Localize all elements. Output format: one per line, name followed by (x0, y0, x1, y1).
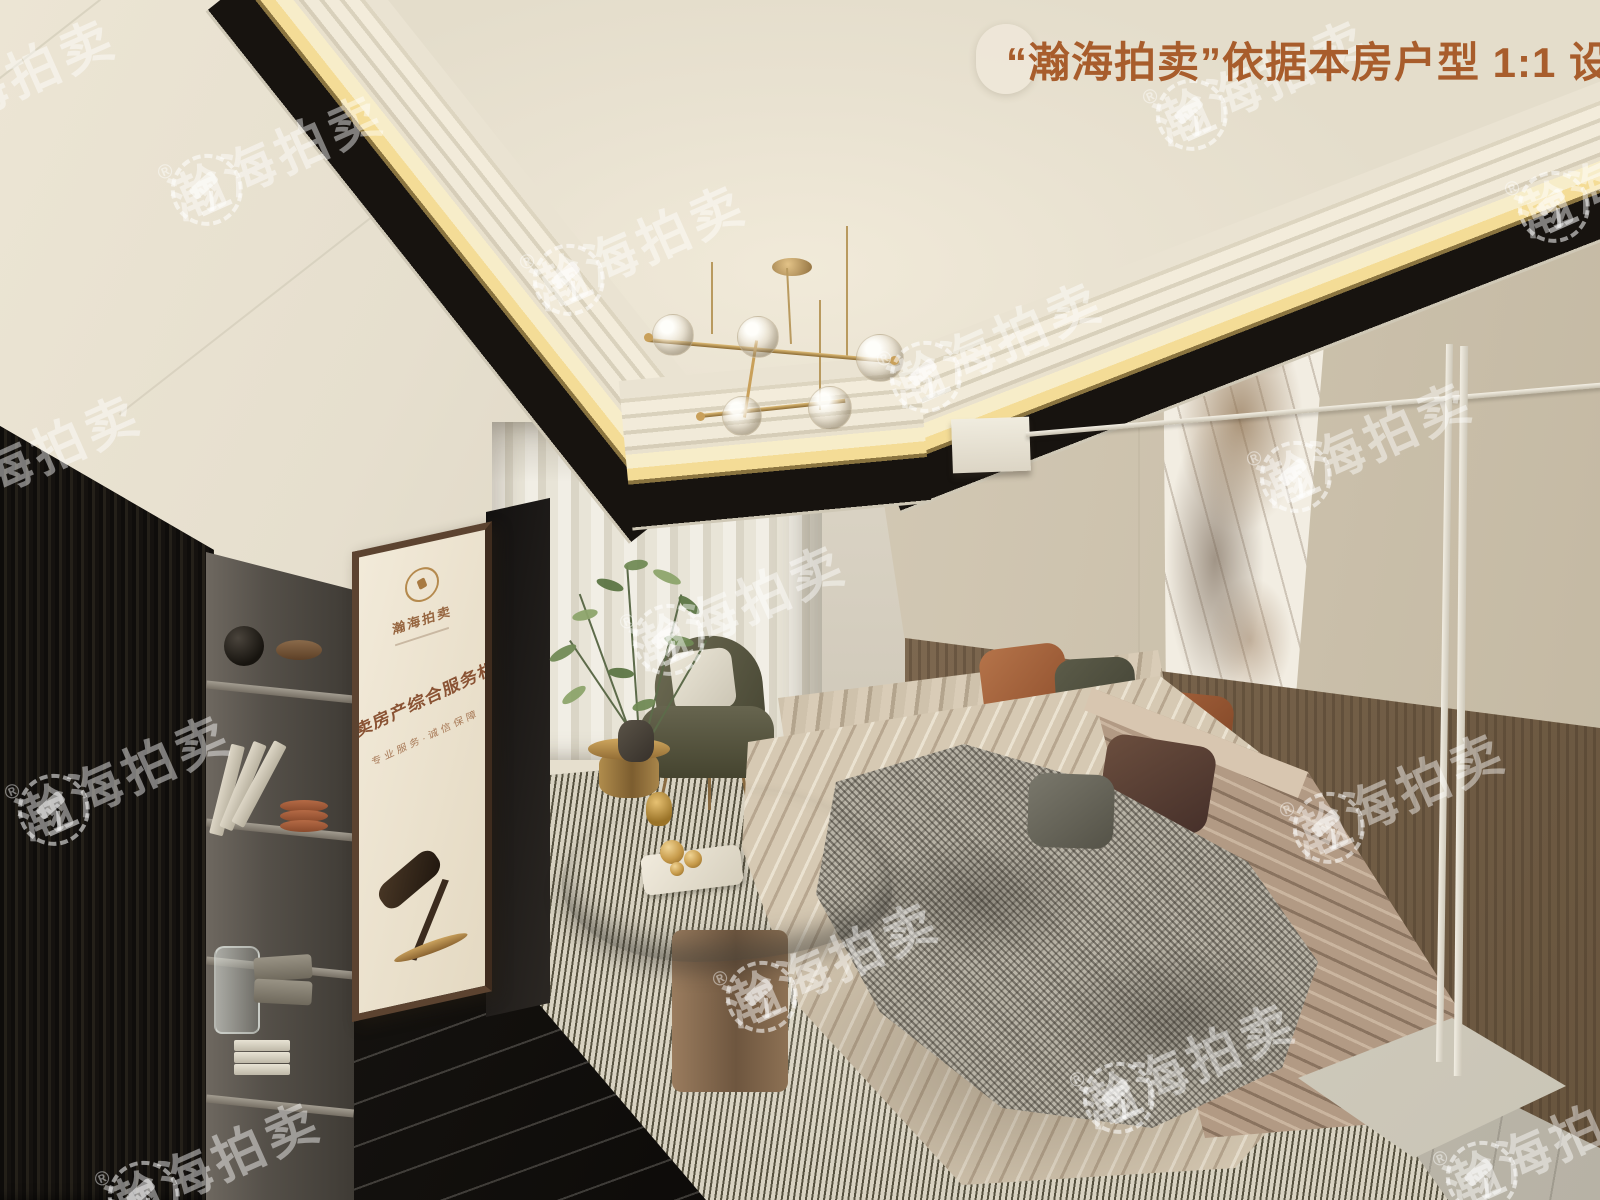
glass-globe-bulb (722, 396, 762, 436)
poster-logo-gavel-icon (417, 577, 428, 590)
glass-globe-bulb (808, 386, 852, 430)
chandelier-ceiling-medallion (772, 258, 812, 276)
design-disclaimer-badge: “瀚海拍卖”依据本房户型 1:1 设计 (976, 24, 1036, 94)
plant-vase (618, 720, 654, 762)
chandelier-wire (846, 226, 848, 358)
poster-gavel-image (356, 797, 492, 1003)
glass-globe-bulb (737, 316, 779, 358)
pillow-gray (1027, 773, 1116, 850)
gold-sphere (670, 862, 684, 876)
wall-mounted-box (951, 417, 1031, 474)
gold-sphere (660, 840, 684, 864)
book-stack (234, 1040, 290, 1080)
chandelier-joint (696, 412, 705, 421)
stacked-stones (254, 956, 314, 1006)
gold-vase (646, 792, 672, 826)
glass-globe-bulb (652, 314, 694, 356)
gold-sphere (684, 850, 702, 868)
chandelier-joint (644, 333, 653, 342)
auction-poster: 瀚海拍卖 拍卖房产综合服务机构 专业服务·诚信保障 (352, 521, 492, 1022)
poster-logo-ring-icon (405, 564, 439, 605)
chandelier-wire (711, 262, 713, 334)
interior-photo: 瀚海拍卖 拍卖房产综合服务机构 专业服务·诚信保障 (0, 0, 1600, 1200)
decor-sphere (224, 626, 264, 666)
shelf (206, 681, 354, 704)
design-disclaimer-text: “瀚海拍卖”依据本房户型 1:1 设计 (1006, 29, 1600, 90)
terracotta-plates (280, 800, 328, 834)
wood-bowl (276, 640, 322, 660)
tv-screen (486, 498, 550, 1017)
